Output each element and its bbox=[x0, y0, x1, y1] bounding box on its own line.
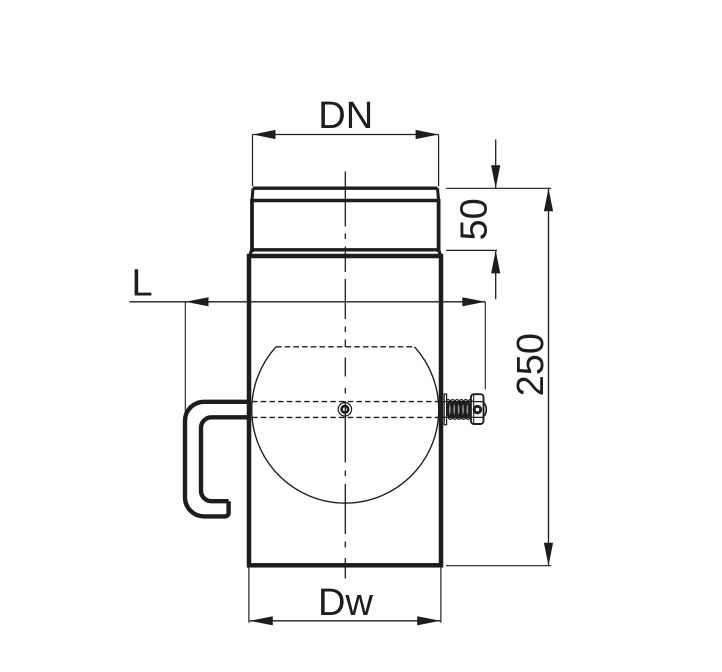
svg-text:L: L bbox=[132, 262, 153, 304]
svg-text:50: 50 bbox=[453, 198, 495, 240]
svg-text:250: 250 bbox=[510, 333, 552, 396]
svg-text:Dw: Dw bbox=[318, 582, 373, 624]
svg-text:DN: DN bbox=[318, 95, 373, 137]
